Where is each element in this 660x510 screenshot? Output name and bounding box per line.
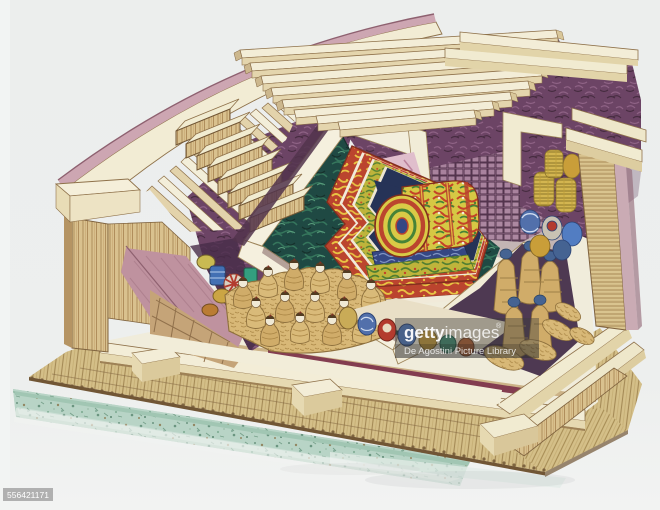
svg-text:gettyimages: gettyimages — [404, 323, 499, 342]
svg-text:556421171: 556421171 — [7, 490, 49, 500]
svg-text:®: ® — [496, 322, 502, 330]
svg-text:De Agostini Picture Library: De Agostini Picture Library — [404, 346, 516, 357]
